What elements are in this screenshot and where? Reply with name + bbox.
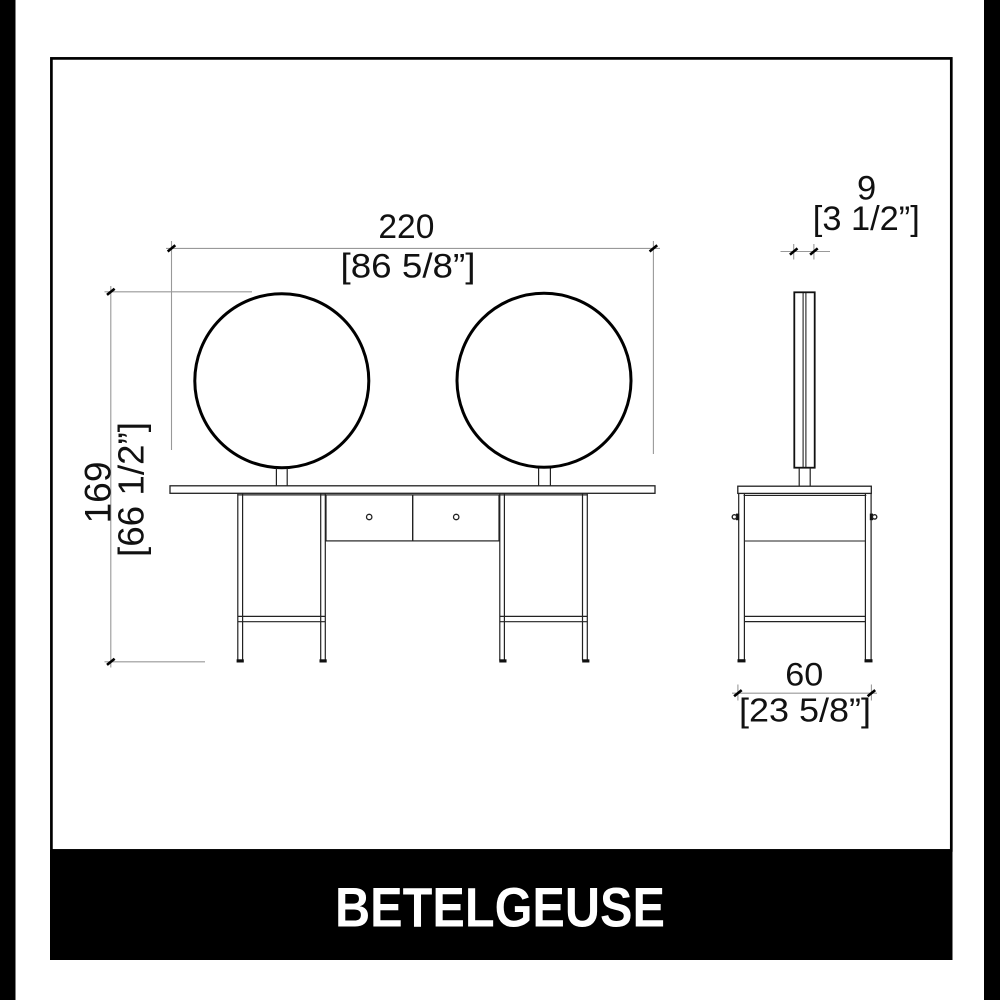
svg-text:[3 1/2”]: [3 1/2”] [813,200,920,238]
svg-text:[86 5/8”]: [86 5/8”] [341,248,476,286]
svg-text:[23 5/8”]: [23 5/8”] [739,692,871,729]
svg-text:220: 220 [378,208,434,246]
svg-text:60: 60 [785,657,823,693]
svg-text:[66 1/2”]: [66 1/2”] [111,422,152,557]
svg-text:BETELGEUSE: BETELGEUSE [335,877,665,939]
